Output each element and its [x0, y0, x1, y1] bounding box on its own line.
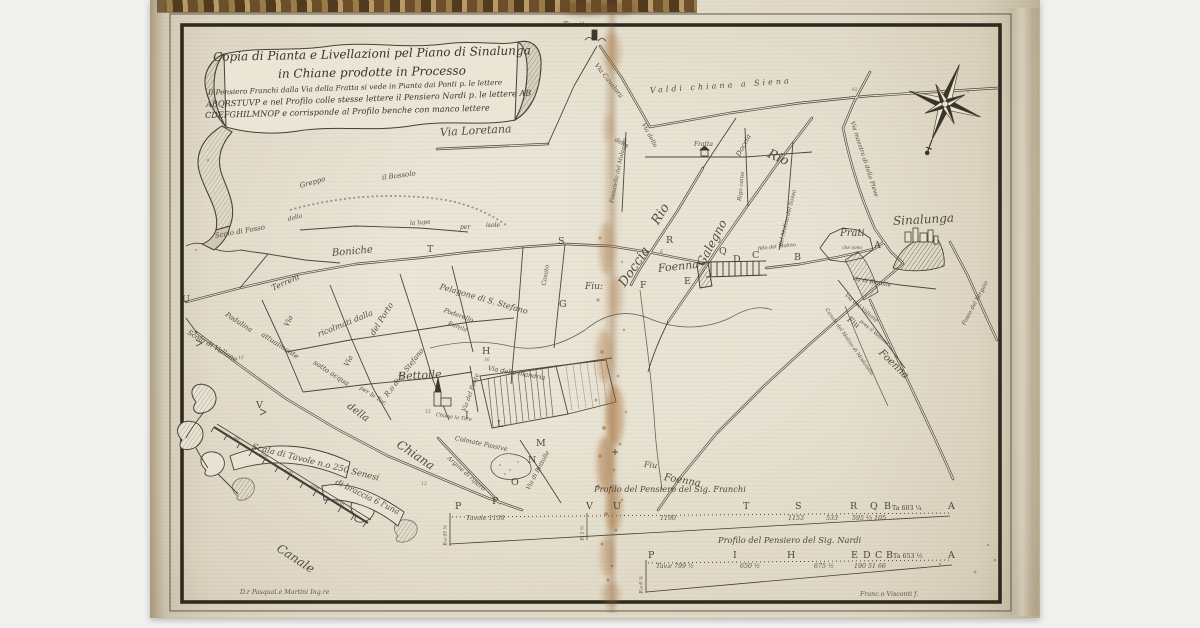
prati-hamlet-outline	[820, 228, 878, 300]
torrita-tower-icon	[585, 30, 606, 41]
map-engraving	[0, 0, 1200, 628]
scale-ribbon	[178, 384, 418, 542]
greppo-ridge	[290, 196, 506, 225]
foxing-dots	[195, 91, 996, 582]
sluice-structure	[697, 261, 767, 288]
bettolle-church-icon	[434, 378, 451, 406]
pond	[491, 454, 531, 480]
profile-lines	[450, 513, 952, 593]
sinalunga-hill-icon	[893, 228, 944, 271]
fratta-house-icon	[700, 146, 709, 156]
map-natural-streams	[430, 290, 888, 490]
scanned-map-page: Copia di Pianta e Livellazioni pel Piano…	[0, 0, 1200, 628]
compass-rose-icon	[891, 52, 995, 168]
